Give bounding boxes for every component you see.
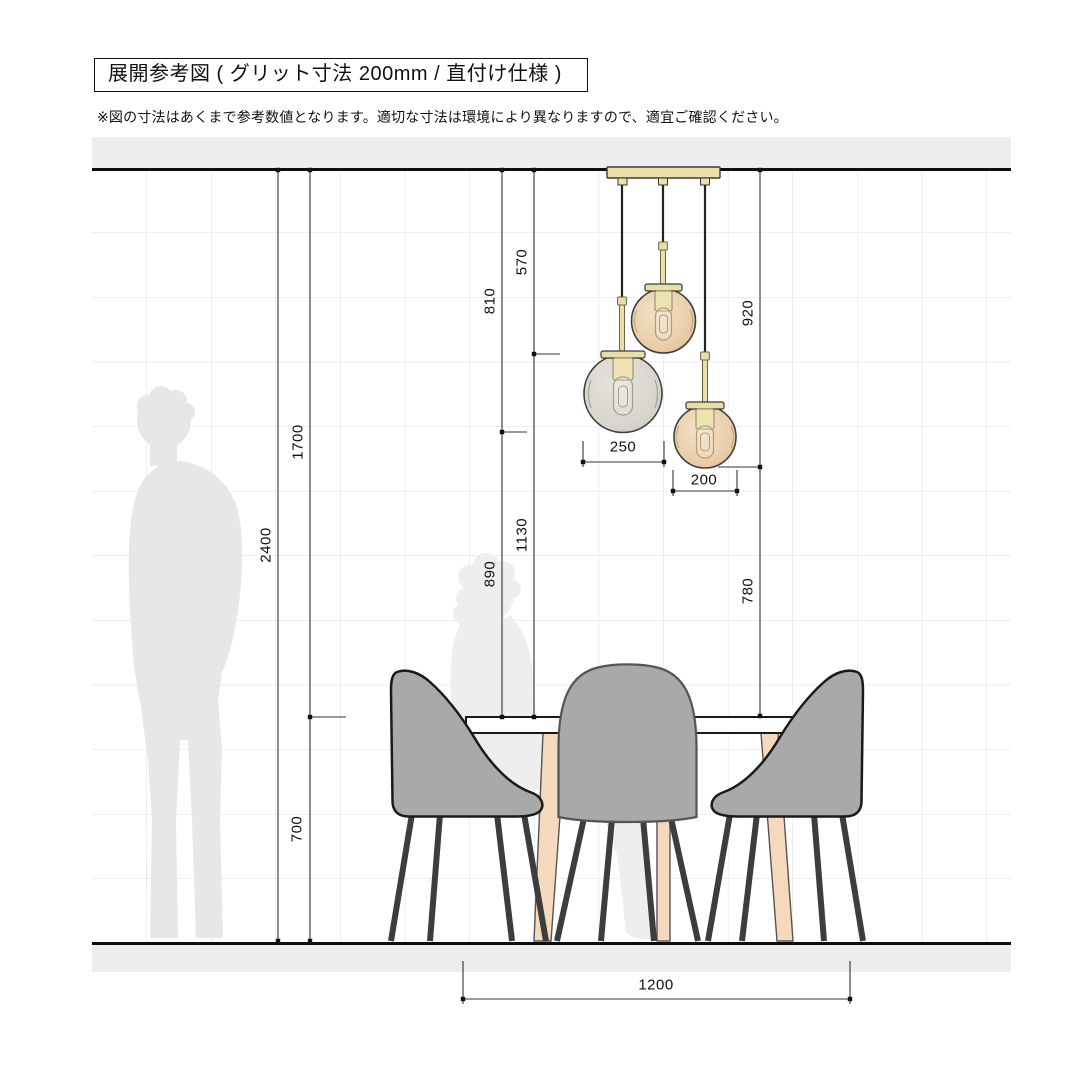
drawing-title: 展開参考図 ( グリット寸法 200mm / 直付け仕様 ) [94,58,588,92]
dim-label-700: 700 [289,816,306,843]
dim-label-890: 890 [482,561,499,588]
dim-label-250: 250 [610,439,637,456]
dim-label-1130: 1130 [514,518,531,552]
ceiling-slab [92,137,1011,170]
light-bulb [614,377,633,415]
dim-label-810: 810 [482,288,499,315]
dim-label-1200: 1200 [638,977,673,994]
dim-label-570: 570 [514,249,531,276]
disclaimer-note: ※図の寸法はあくまで参考数値となります。適切な寸法は環境により異なりますので、適… [97,107,788,127]
dim-label-2400: 2400 [258,527,275,562]
dim-label-1700: 1700 [290,424,307,459]
ceiling-canopy [607,167,720,178]
dim-label-780: 780 [740,578,757,605]
elevation-drawing [0,0,1090,1090]
dim-label-200: 200 [691,472,718,489]
light-bulb [697,426,714,458]
light-bulb [656,308,672,340]
elevation-reference-sheet: 展開参考図 ( グリット寸法 200mm / 直付け仕様 ) ※図の寸法はあくま… [0,0,1090,1090]
dim-label-920: 920 [740,300,757,327]
floor-slab [92,944,1011,973]
